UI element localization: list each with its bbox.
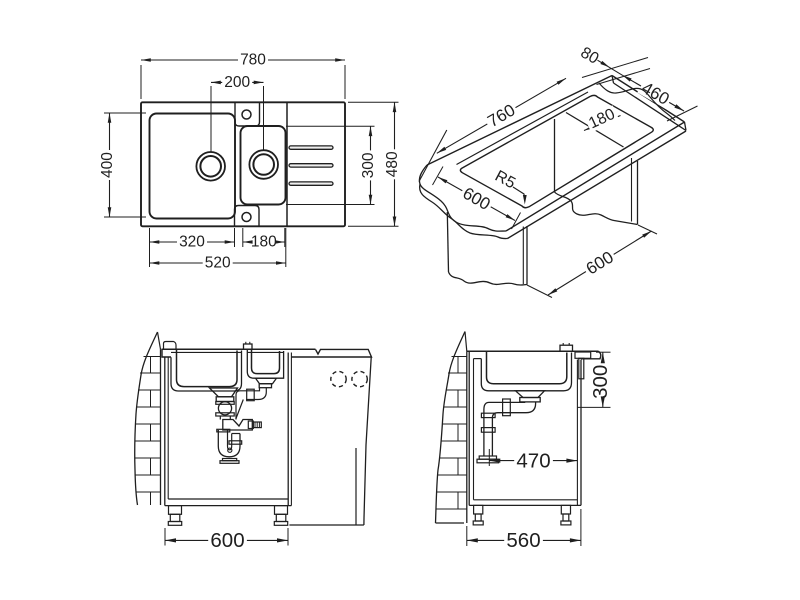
svg-text:400: 400 [99, 152, 116, 178]
svg-text:200: 200 [224, 74, 250, 91]
svg-text:300: 300 [360, 152, 377, 178]
svg-text:780: 780 [240, 52, 266, 69]
svg-text:560: 560 [506, 529, 540, 552]
svg-text:320: 320 [179, 234, 205, 251]
svg-text:300: 300 [589, 365, 612, 399]
svg-text:480: 480 [384, 151, 401, 177]
svg-text:470: 470 [516, 449, 550, 472]
svg-text:520: 520 [205, 255, 231, 272]
svg-text:600: 600 [210, 529, 244, 552]
svg-text:180: 180 [251, 234, 277, 251]
